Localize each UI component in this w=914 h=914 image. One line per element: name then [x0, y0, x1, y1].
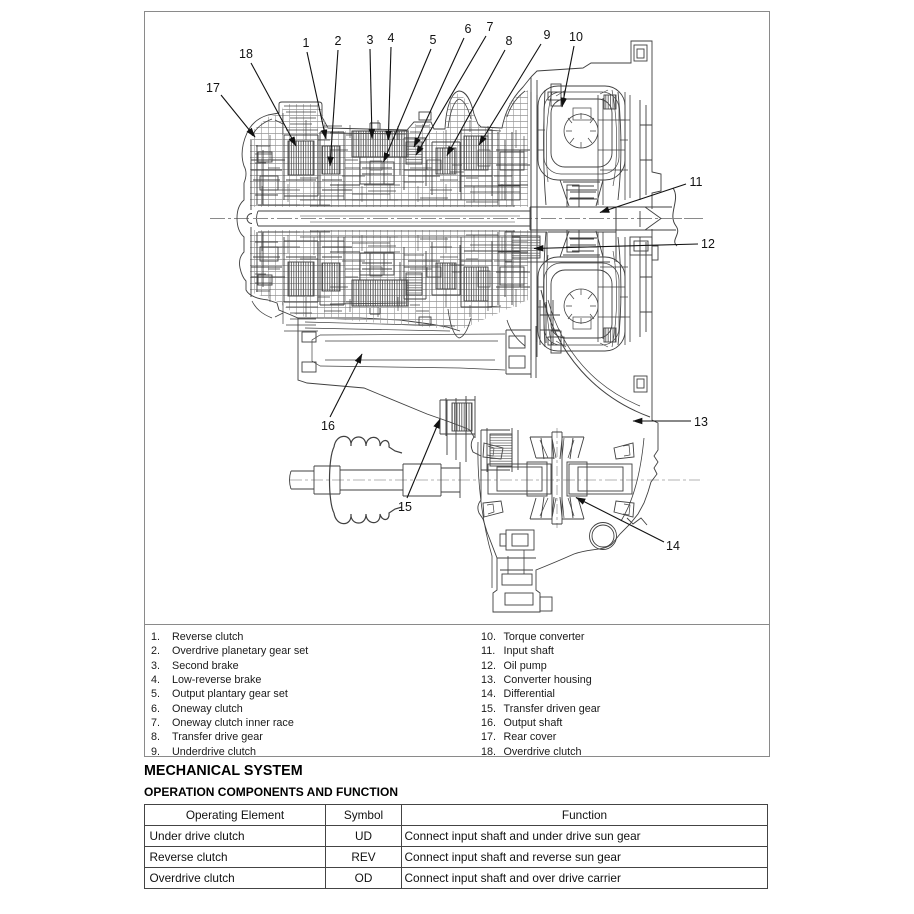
svg-text:14: 14 — [666, 539, 680, 553]
svg-text:2: 2 — [335, 34, 342, 48]
svg-text:10: 10 — [569, 30, 583, 44]
svg-text:7: 7 — [487, 20, 494, 34]
svg-text:12: 12 — [701, 237, 715, 251]
svg-text:8: 8 — [506, 34, 513, 48]
svg-text:18: 18 — [239, 47, 253, 61]
svg-text:17: 17 — [206, 81, 220, 95]
svg-text:6: 6 — [465, 22, 472, 36]
svg-text:15: 15 — [398, 500, 412, 514]
svg-text:4: 4 — [388, 31, 395, 45]
svg-text:3: 3 — [367, 33, 374, 47]
svg-text:16: 16 — [321, 419, 335, 433]
svg-text:1: 1 — [303, 36, 310, 50]
svg-text:9: 9 — [544, 28, 551, 42]
svg-text:5: 5 — [430, 33, 437, 47]
svg-text:13: 13 — [694, 415, 708, 429]
svg-text:11: 11 — [690, 175, 703, 189]
